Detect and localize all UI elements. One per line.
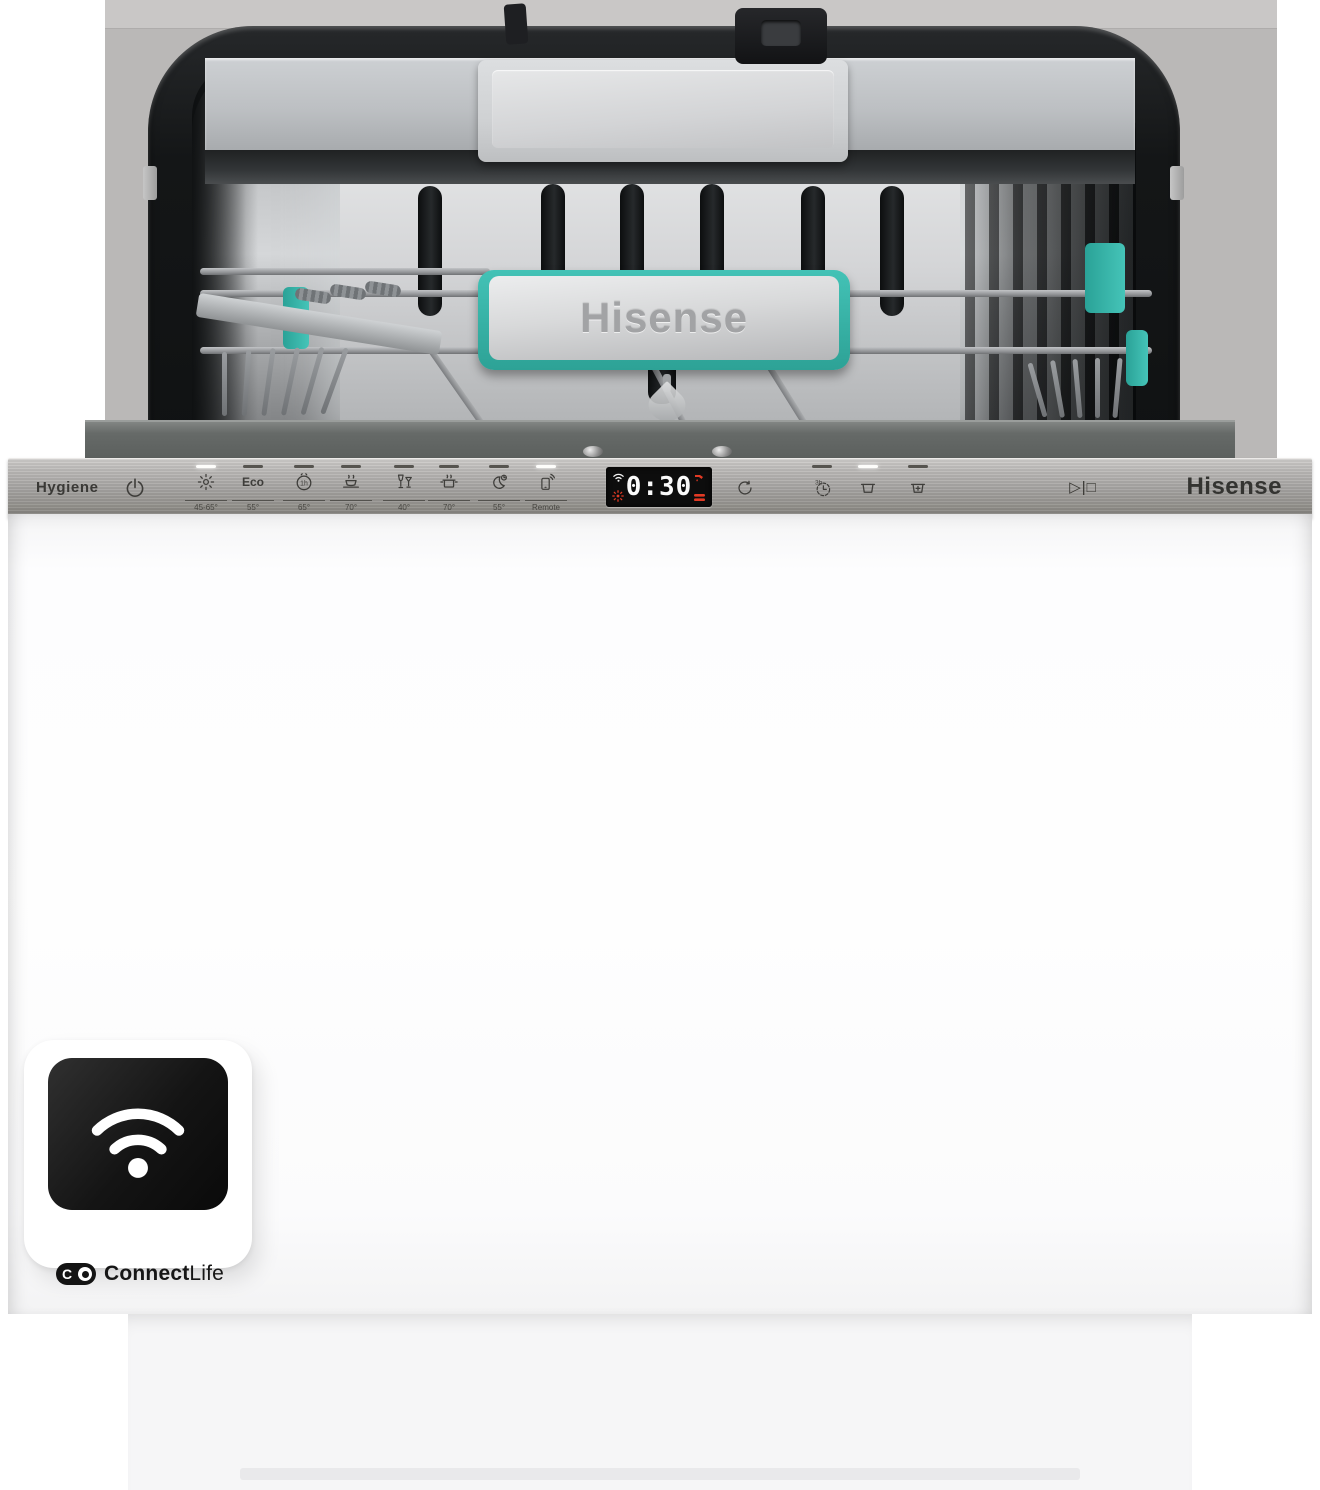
- program-indicator-led: [489, 465, 509, 468]
- start-pause-button[interactable]: ▷|□: [1048, 459, 1118, 515]
- program-underline: [232, 500, 274, 502]
- program-glass-button[interactable]: 40°: [381, 459, 427, 515]
- delay-start-icon: [733, 476, 757, 500]
- program-quick-1h-button[interactable]: 1h 65°: [281, 459, 327, 515]
- program-remote-button[interactable]: Remote: [523, 459, 569, 515]
- delay-start-button[interactable]: [722, 459, 768, 515]
- cabinet-top-band: [105, 0, 1277, 29]
- power-icon: [123, 475, 147, 499]
- program-eco-button[interactable]: Eco 55°: [230, 459, 276, 515]
- product-photo-hisense-dishwasher: Hisense Hygiene 45-65°: [0, 0, 1320, 1490]
- hygiene-label: Hygiene: [36, 459, 99, 515]
- program-temp: 55°: [476, 503, 522, 512]
- power-button[interactable]: [113, 465, 157, 509]
- rack-rail-upper-left: [200, 268, 490, 275]
- program-temp: 65°: [281, 503, 327, 512]
- program-indicator-led: [341, 465, 361, 468]
- left-hinge-tab: [143, 166, 157, 200]
- program-indicator-led: [439, 465, 459, 468]
- svg-text:1h: 1h: [300, 481, 308, 488]
- program-temp: 45-65°: [183, 503, 229, 512]
- program-auto-button[interactable]: 45-65°: [183, 459, 229, 515]
- auto-program-icon: [194, 470, 218, 494]
- program-temp: 40°: [381, 503, 427, 512]
- program-underline: [525, 500, 567, 502]
- door-balance-tab: [504, 3, 529, 44]
- program-underline: [428, 500, 470, 502]
- option-indicator-led: [858, 465, 878, 468]
- program-intensive-button[interactable]: 70°: [328, 459, 374, 515]
- rinse-aid-icon: [612, 490, 625, 502]
- program-night-button[interactable]: 55°: [476, 459, 522, 515]
- water-tap-icon: [693, 472, 706, 484]
- sill-hinge-cap: [712, 446, 732, 457]
- connectlife-app-tile: [48, 1058, 228, 1210]
- program-label: Remote: [523, 503, 569, 512]
- upper-basket-plus-icon: [906, 476, 930, 500]
- program-indicator-led: [294, 465, 314, 468]
- connectlife-wordmark: ConnectLife: [104, 1262, 224, 1286]
- teal-rack-clip-right: [1085, 243, 1125, 313]
- program-indicator-led: [536, 465, 556, 468]
- delay-3h-icon: 3h: [810, 476, 834, 500]
- teal-rack-clip-right-low: [1126, 330, 1148, 386]
- basket-handle: Hisense: [489, 276, 839, 360]
- program-pots-button[interactable]: 70°: [426, 459, 472, 515]
- night-program-icon: [487, 470, 511, 494]
- connectlife-monogram: C: [62, 1267, 72, 1281]
- plinth-foot-strip: [240, 1468, 1080, 1480]
- wifi-icon: [612, 472, 625, 483]
- display-time: 0:30: [626, 474, 693, 500]
- plate-tine: [1095, 358, 1100, 418]
- hisense-logo-handle: Hisense: [580, 294, 748, 342]
- program-underline: [185, 500, 227, 502]
- cutlery-tray-handle-plate: [492, 70, 834, 148]
- lower-basket-icon: [856, 476, 880, 500]
- program-temp: 70°: [328, 503, 374, 512]
- wifi-icon-large: [79, 1086, 197, 1182]
- glass-program-icon: [392, 470, 416, 494]
- connectlife-pill-icon: C: [56, 1263, 96, 1285]
- remote-program-icon: [534, 470, 558, 494]
- salt-icon: [693, 493, 706, 502]
- svg-text:3h: 3h: [815, 479, 823, 486]
- start-pause-icon: ▷|□: [1069, 478, 1097, 496]
- program-underline: [330, 500, 372, 502]
- upper-basket-plus-button[interactable]: [895, 459, 941, 515]
- eco-program-label: Eco: [241, 470, 265, 494]
- plate-tine: [222, 352, 227, 416]
- plinth: [128, 1314, 1192, 1490]
- control-panel: Hygiene 45-65° Eco: [8, 458, 1312, 518]
- led-display: 0:30: [606, 467, 712, 507]
- intensive-program-icon: [339, 470, 363, 494]
- lower-basket-button[interactable]: [845, 459, 891, 515]
- door-latch-slot: [761, 20, 801, 46]
- program-temp: 70°: [426, 503, 472, 512]
- program-underline: [383, 500, 425, 502]
- program-indicator-led: [394, 465, 414, 468]
- program-indicator-led: [196, 465, 216, 468]
- connectlife-logo: C ConnectLife: [56, 1262, 252, 1286]
- right-hinge-tab: [1170, 166, 1184, 200]
- program-underline: [478, 500, 520, 502]
- hisense-logo-panel: Hisense: [1186, 459, 1282, 515]
- program-temp: 55°: [230, 503, 276, 512]
- program-underline: [283, 500, 325, 502]
- option-indicator-led: [812, 465, 832, 468]
- delay-3h-button[interactable]: 3h: [799, 459, 845, 515]
- program-indicator-led: [243, 465, 263, 468]
- quick-1h-icon: 1h: [292, 470, 316, 494]
- pots-program-icon: [437, 470, 461, 494]
- sill-hinge-cap: [583, 446, 603, 457]
- connectlife-knob-icon: [78, 1267, 92, 1281]
- option-indicator-led: [908, 465, 928, 468]
